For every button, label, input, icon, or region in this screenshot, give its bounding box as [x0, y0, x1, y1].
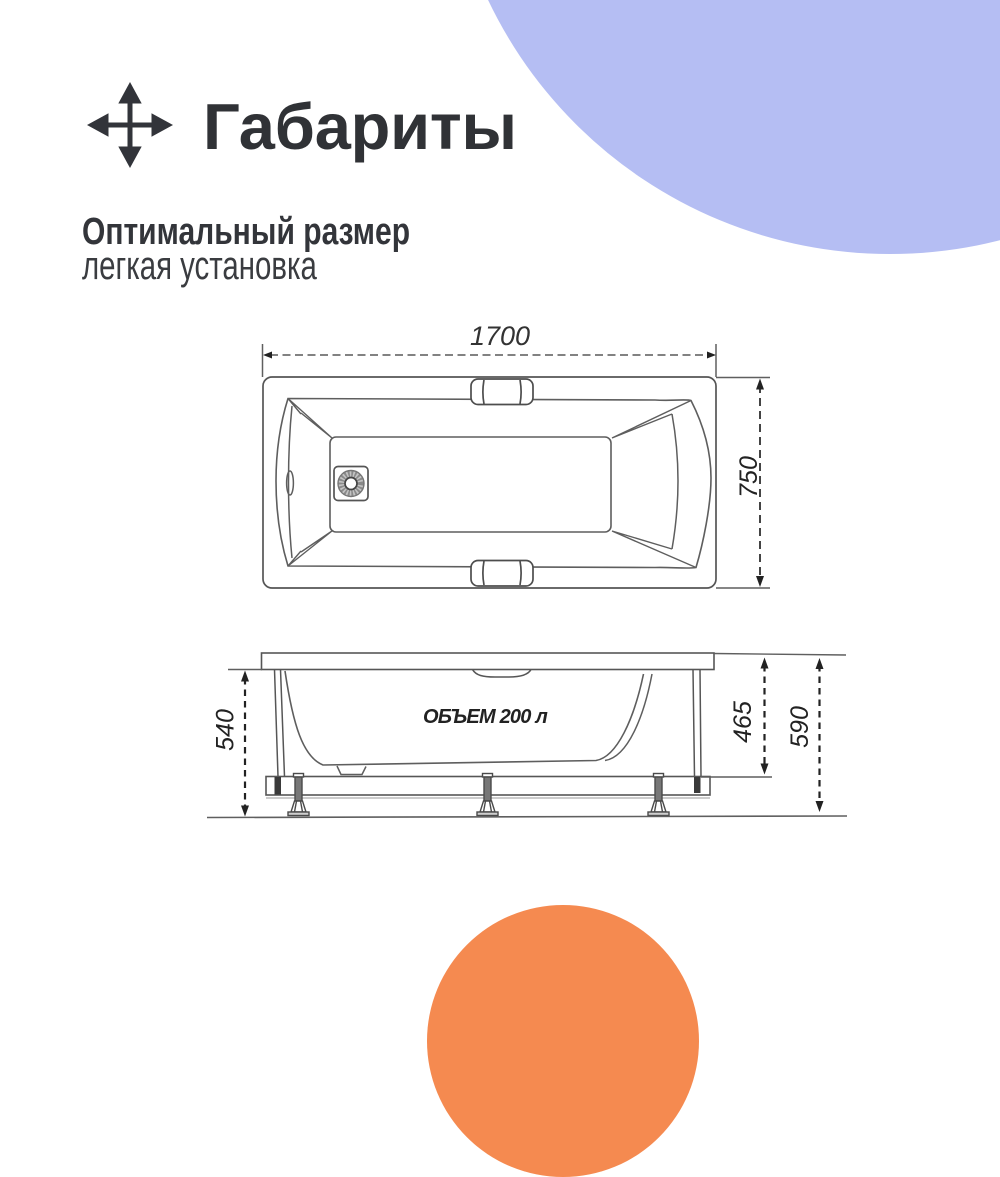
svg-text:1700: 1700 [470, 321, 530, 351]
svg-text:465: 465 [729, 701, 757, 743]
svg-text:ОБЪЕМ 200 л: ОБЪЕМ 200 л [423, 706, 548, 728]
svg-text:590: 590 [786, 706, 814, 748]
svg-text:540: 540 [212, 709, 240, 751]
svg-text:750: 750 [735, 456, 763, 498]
